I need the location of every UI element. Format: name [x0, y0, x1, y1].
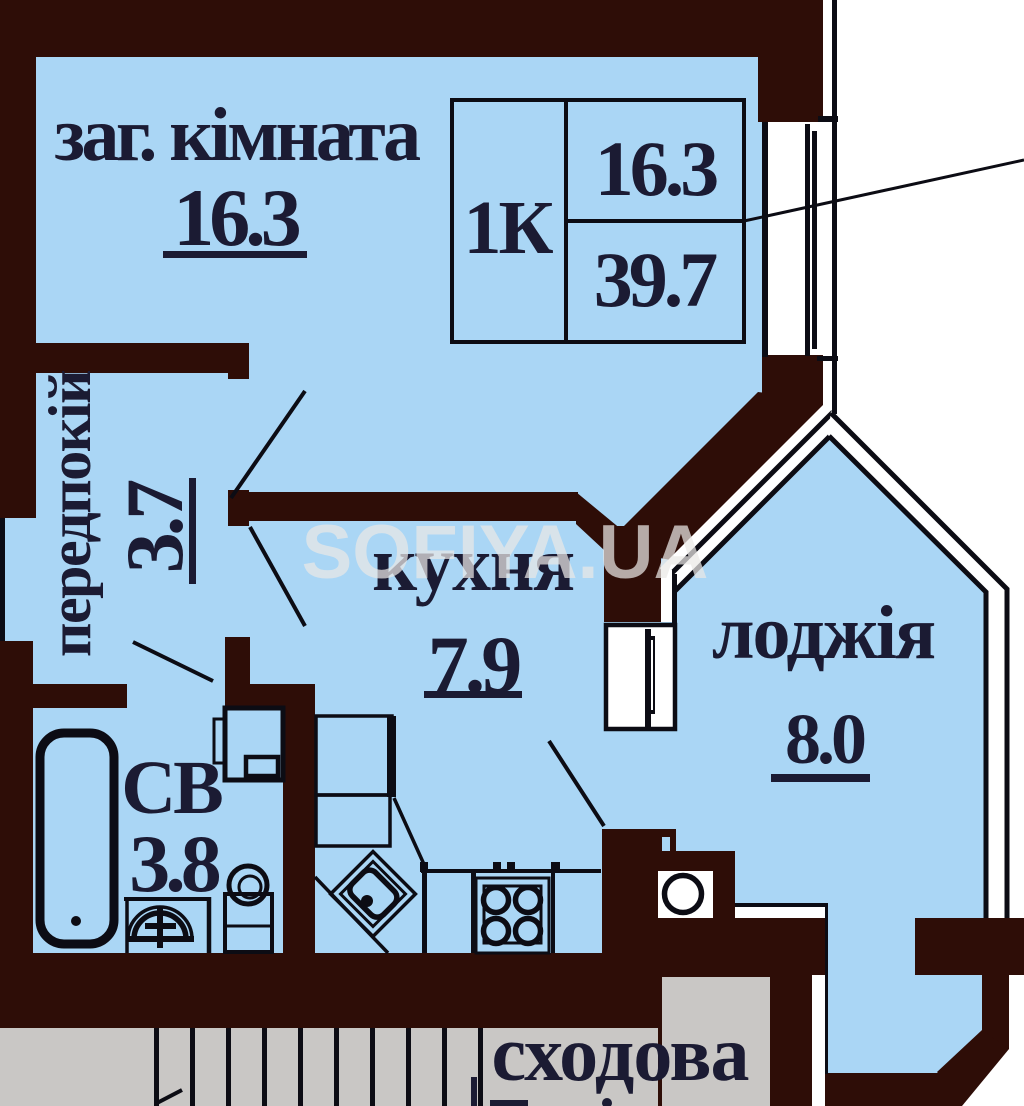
svg-text:1К: 1К: [463, 186, 553, 270]
svg-text:сходова: сходова: [491, 1010, 748, 1097]
svg-text:заг. кімната: заг. кімната: [54, 93, 420, 177]
svg-text:3.8: 3.8: [129, 818, 220, 909]
svg-text:39.7: 39.7: [594, 236, 718, 323]
svg-text:SOFIYA.UA: SOFIYA.UA: [302, 510, 709, 595]
svg-text:передпокій: передпокій: [37, 371, 103, 657]
svg-text:8.0: 8.0: [785, 699, 865, 779]
svg-text:3.7: 3.7: [109, 481, 200, 574]
svg-text:лоджія: лоджія: [712, 591, 935, 675]
svg-text:16.3: 16.3: [173, 172, 300, 263]
svg-text:16.3: 16.3: [595, 125, 718, 212]
